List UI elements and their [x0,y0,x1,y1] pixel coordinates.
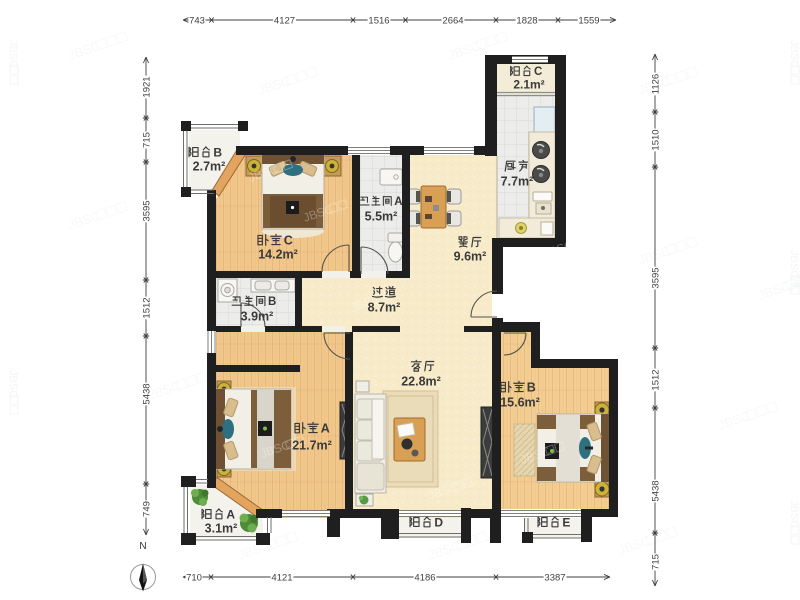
svg-text:A: A [394,196,402,208]
svg-text:749: 749 [141,501,152,517]
svg-text:JBSC: JBSC [7,370,19,398]
svg-text:1510: 1510 [650,129,661,150]
svg-text:1559: 1559 [578,15,599,26]
svg-text:15.6m²: 15.6m² [500,396,540,410]
svg-text:715: 715 [141,132,152,148]
svg-text:2664: 2664 [442,15,463,26]
svg-text:JBSC: JBSC [7,40,19,68]
svg-text:1512: 1512 [141,297,152,318]
svg-text:3.1m²: 3.1m² [205,522,238,536]
svg-text:JBSC: JBSC [788,250,800,278]
svg-text:1828: 1828 [516,15,537,26]
svg-text:21.7m²: 21.7m² [292,439,332,453]
svg-text:2.1m²: 2.1m² [513,77,544,91]
svg-text:4186: 4186 [414,572,435,583]
svg-text:8.7m²: 8.7m² [368,301,401,315]
svg-text:2.7m²: 2.7m² [193,160,226,174]
svg-text:1921: 1921 [141,76,152,97]
svg-text:C: C [284,234,293,248]
svg-text:1516: 1516 [368,15,389,26]
svg-text:7.7m²: 7.7m² [501,175,534,189]
svg-text:3387: 3387 [544,572,565,583]
svg-text:3.9m²: 3.9m² [241,310,274,324]
svg-text:B: B [268,296,276,308]
svg-text:4121: 4121 [271,572,292,583]
svg-text:3595: 3595 [141,200,152,221]
svg-text:5438: 5438 [650,480,661,501]
svg-text:B: B [527,381,536,395]
svg-text:N: N [139,541,146,552]
svg-text:4127: 4127 [274,15,295,26]
svg-text:22.8m²: 22.8m² [401,375,441,389]
svg-text:JBSC: JBSC [788,500,800,528]
svg-text:14.2m²: 14.2m² [258,248,298,262]
svg-text:5.5m²: 5.5m² [365,210,398,224]
svg-text:1126: 1126 [650,74,661,94]
svg-text:715: 715 [650,554,661,570]
svg-text:B: B [213,145,222,159]
svg-text:9.6m²: 9.6m² [454,250,487,264]
svg-text:743: 743 [189,15,205,26]
svg-text:A: A [226,507,235,521]
svg-text:710: 710 [186,572,202,583]
svg-text:1512: 1512 [650,369,661,390]
svg-text:5438: 5438 [141,383,152,404]
svg-text:D: D [434,515,443,529]
svg-text:3595: 3595 [650,267,661,288]
svg-text:A: A [321,422,330,436]
svg-text:E: E [562,515,570,529]
svg-text:JBSC: JBSC [788,40,800,68]
